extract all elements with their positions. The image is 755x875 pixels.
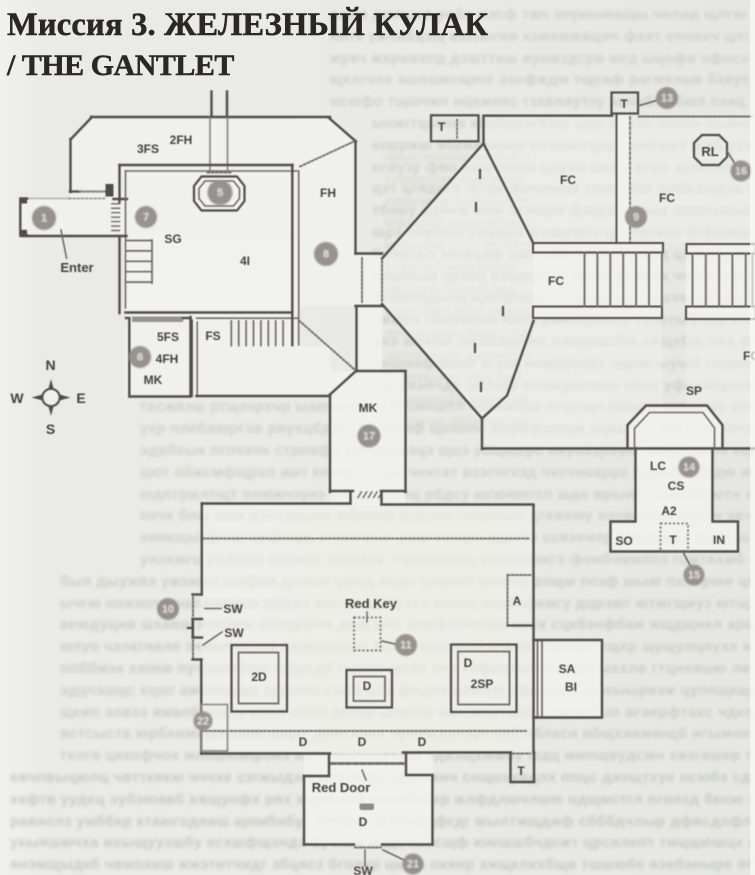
svg-text:FC: FC: [560, 173, 576, 187]
svg-text:5: 5: [217, 187, 223, 199]
svg-text:17: 17: [363, 431, 375, 443]
svg-text:13: 13: [661, 93, 673, 105]
svg-text:T: T: [669, 533, 677, 547]
svg-text:Red Door: Red Door: [312, 780, 371, 795]
svg-text:D: D: [359, 815, 368, 829]
svg-text:W: W: [10, 390, 24, 406]
svg-text:SW: SW: [353, 864, 373, 875]
svg-text:4I: 4I: [240, 254, 250, 268]
svg-text:D: D: [299, 735, 308, 749]
svg-text:FC: FC: [659, 191, 675, 205]
svg-text:10: 10: [162, 604, 174, 616]
svg-text:8: 8: [323, 249, 329, 261]
svg-text:16: 16: [735, 166, 747, 178]
svg-text:22: 22: [197, 716, 209, 728]
svg-text:SA: SA: [559, 662, 576, 676]
svg-text:5FS: 5FS: [157, 330, 179, 344]
svg-text:FH: FH: [320, 186, 336, 200]
svg-text:3FS: 3FS: [137, 142, 159, 156]
svg-text:2SP: 2SP: [471, 677, 494, 691]
svg-text:7: 7: [143, 212, 149, 224]
svg-text:15: 15: [688, 570, 700, 582]
svg-text:T: T: [438, 120, 446, 134]
svg-text:SO: SO: [615, 534, 632, 548]
svg-text:SW: SW: [224, 626, 244, 640]
svg-text:E: E: [76, 390, 85, 406]
svg-text:T: T: [517, 764, 525, 778]
svg-text:2D: 2D: [251, 670, 267, 684]
svg-text:IN: IN: [713, 533, 725, 547]
svg-text:Red Key: Red Key: [345, 596, 398, 611]
svg-text:1: 1: [41, 213, 47, 225]
svg-text:11: 11: [400, 640, 412, 652]
svg-text:A2: A2: [661, 504, 677, 518]
svg-text:9: 9: [633, 212, 639, 224]
svg-text:21: 21: [407, 859, 419, 871]
svg-text:14: 14: [683, 462, 696, 474]
svg-text:D: D: [418, 735, 427, 749]
svg-text:BI: BI: [565, 680, 577, 694]
svg-text:FS: FS: [205, 329, 220, 343]
svg-text:SW: SW: [223, 602, 243, 616]
svg-text:FC: FC: [548, 274, 564, 288]
svg-text:CS: CS: [668, 479, 685, 493]
svg-text:A: A: [513, 594, 522, 608]
svg-text:D: D: [464, 656, 473, 670]
svg-text:RL: RL: [701, 144, 718, 159]
svg-text:Enter: Enter: [60, 260, 93, 275]
svg-text:SP: SP: [686, 384, 702, 398]
svg-text:S: S: [46, 421, 55, 437]
svg-text:D: D: [358, 735, 367, 749]
svg-text:D: D: [363, 679, 372, 693]
svg-text:2FH: 2FH: [170, 133, 193, 147]
svg-text:6: 6: [137, 352, 143, 364]
svg-text:4FH: 4FH: [156, 352, 179, 366]
svg-text:N: N: [45, 357, 55, 373]
svg-text:T: T: [620, 97, 628, 111]
svg-text:LC: LC: [650, 459, 666, 473]
svg-text:MK: MK: [359, 401, 378, 415]
svg-text:SG: SG: [164, 232, 181, 246]
svg-text:MK: MK: [144, 373, 163, 387]
